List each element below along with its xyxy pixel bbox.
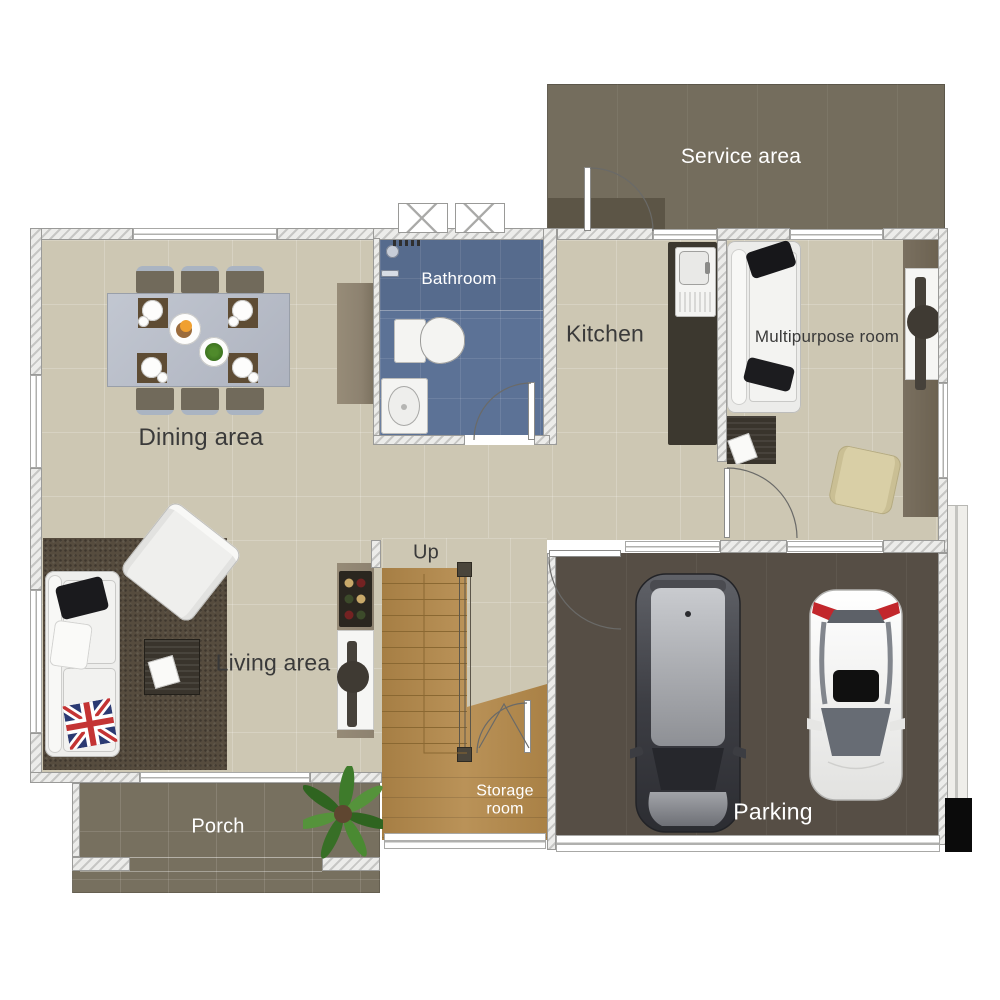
greens-dish bbox=[205, 343, 223, 361]
window-living-bottom bbox=[140, 772, 310, 783]
wall-bathroom-bottom-2 bbox=[534, 435, 550, 445]
storage-room-label: Storage room bbox=[469, 783, 541, 820]
plant bbox=[303, 766, 383, 860]
wall-porch-left bbox=[72, 783, 80, 857]
wall-stairs-stub bbox=[371, 540, 381, 568]
shower-drain-icon bbox=[386, 245, 399, 258]
side-plate bbox=[248, 372, 259, 383]
dining-cabinet bbox=[337, 283, 377, 404]
multipurpose-armchair bbox=[827, 444, 902, 516]
desk-stool bbox=[337, 661, 369, 693]
stair-post bbox=[457, 747, 472, 762]
wall-parking-top-2 bbox=[883, 540, 945, 553]
stair-treads bbox=[382, 568, 467, 758]
wall-storage-right bbox=[547, 553, 556, 850]
kitchen-label: Kitchen bbox=[566, 321, 644, 348]
window-multipurpose-top bbox=[790, 229, 883, 240]
wall-bathroom-left bbox=[373, 238, 380, 445]
window-storage-bottom bbox=[384, 833, 546, 849]
kitchen-faucet-icon bbox=[705, 262, 710, 274]
white-pillow bbox=[49, 620, 93, 671]
dining-chair bbox=[136, 388, 174, 415]
wall-porch-stub-left bbox=[72, 857, 130, 871]
sofa-bolster bbox=[731, 249, 747, 405]
wall-top-3 bbox=[717, 228, 790, 240]
service-counter bbox=[548, 198, 665, 231]
dining-chair bbox=[181, 388, 219, 415]
skylight-icon bbox=[398, 203, 448, 233]
wall-bathroom-right bbox=[543, 228, 557, 445]
union-jack-pillow bbox=[63, 698, 118, 750]
multipurpose-door bbox=[724, 468, 730, 538]
porch-label: Porch bbox=[191, 816, 244, 839]
service-door bbox=[584, 167, 591, 231]
window-dining-top bbox=[133, 228, 277, 240]
car-suv bbox=[630, 570, 746, 836]
window-parking-top-2 bbox=[787, 541, 883, 552]
dining-chair bbox=[136, 266, 174, 293]
stair-banister bbox=[459, 570, 471, 752]
window-dining-left bbox=[30, 375, 42, 468]
stair-post bbox=[457, 562, 472, 577]
dining-chair bbox=[226, 266, 264, 293]
wall-top-4 bbox=[883, 228, 945, 240]
window-living-left bbox=[30, 590, 42, 733]
wall-right-1 bbox=[938, 228, 948, 383]
parking-label: Parking bbox=[733, 799, 812, 826]
bathroom-label: Bathroom bbox=[421, 269, 496, 289]
storage-door bbox=[524, 700, 531, 753]
sink-drain bbox=[401, 404, 407, 410]
window-multipurpose-right bbox=[938, 383, 948, 478]
shower-head-icon bbox=[381, 270, 399, 277]
terrace-strip bbox=[946, 505, 968, 845]
parking-door bbox=[549, 550, 621, 557]
vent-strip-icon bbox=[393, 240, 421, 246]
skylight-icon bbox=[455, 203, 505, 233]
wall-kitchen-multipurpose bbox=[717, 240, 727, 462]
wall-parking-top-1 bbox=[720, 540, 787, 553]
wall-top-2 bbox=[277, 228, 380, 240]
bathroom-door-gap bbox=[465, 435, 534, 445]
garage-door bbox=[556, 835, 940, 852]
egg-yolk bbox=[180, 320, 192, 332]
wall-left-1 bbox=[30, 228, 42, 375]
window-parking-top-1 bbox=[625, 541, 720, 552]
dining-table bbox=[107, 293, 290, 387]
black-marker bbox=[945, 798, 972, 852]
side-plate bbox=[157, 372, 168, 383]
dining-chair bbox=[226, 388, 264, 415]
car-white bbox=[806, 586, 906, 804]
side-plate bbox=[138, 316, 149, 327]
service-area-label: Service area bbox=[681, 145, 801, 169]
living-area-label: Living area bbox=[216, 650, 331, 677]
bathroom-door bbox=[528, 382, 535, 440]
dining-chair bbox=[181, 266, 219, 293]
desk-stool bbox=[907, 305, 941, 339]
multipurpose-room-label: Multipurpose room bbox=[755, 327, 899, 347]
kitchen-drainboard bbox=[679, 292, 712, 312]
dining-area-label: Dining area bbox=[139, 424, 264, 452]
window-kitchen-top bbox=[653, 229, 717, 240]
wall-bathroom-bottom-1 bbox=[373, 435, 465, 445]
wall-bottom-living-1 bbox=[30, 772, 140, 783]
wall-top-1 bbox=[30, 228, 133, 240]
wine-rack bbox=[339, 571, 372, 627]
wall-left-2 bbox=[30, 468, 42, 590]
side-plate bbox=[228, 316, 239, 327]
wall-top-kitchen bbox=[557, 228, 653, 240]
floor-plan: Service area Bathroom Kitchen Multipurpo… bbox=[0, 0, 1000, 1000]
stairs-up-label: Up bbox=[413, 542, 439, 565]
